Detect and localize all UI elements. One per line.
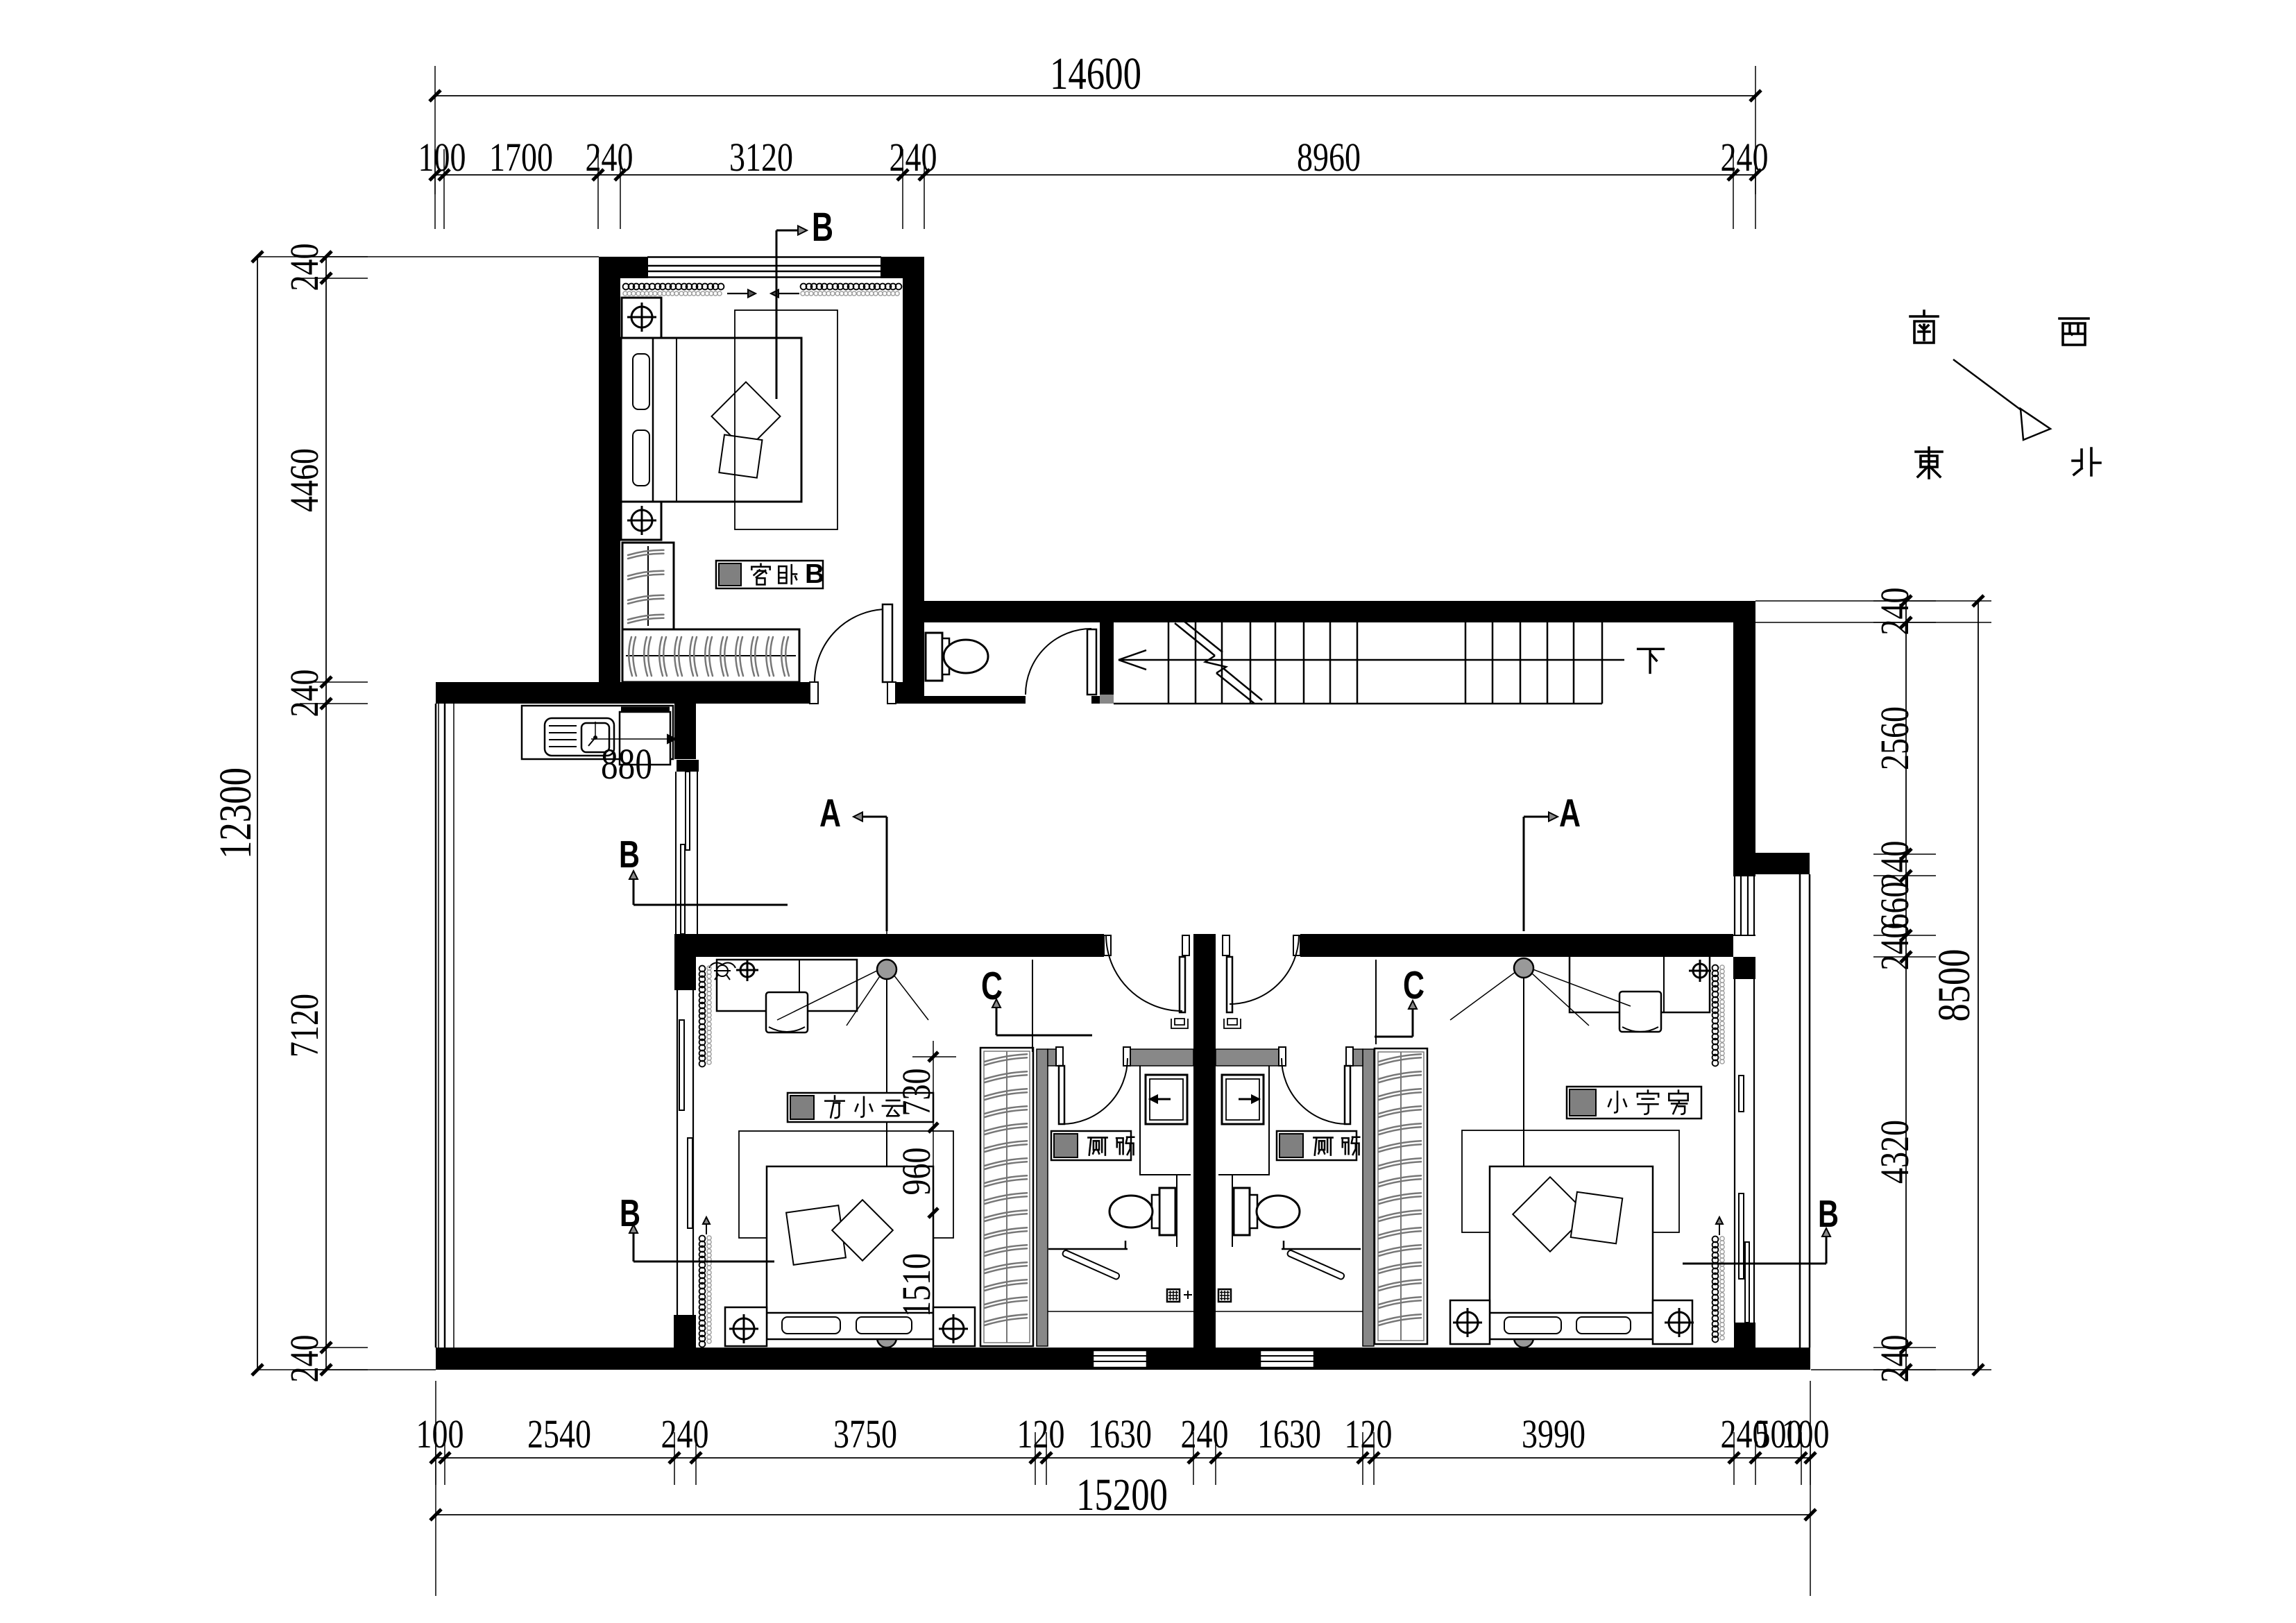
svg-text:B: B [620,1191,640,1234]
svg-text:660: 660 [1872,882,1917,930]
svg-text:7120: 7120 [282,994,327,1057]
svg-text:12300: 12300 [210,767,261,859]
svg-text:880: 880 [601,741,652,788]
svg-text:100: 100 [418,135,466,180]
svg-text:4320: 4320 [1872,1120,1917,1184]
svg-text:14600: 14600 [1050,49,1141,99]
svg-text:B: B [812,205,833,250]
svg-text:1630: 1630 [1257,1411,1321,1456]
svg-text:B: B [619,833,640,876]
svg-text:240: 240 [586,135,633,180]
svg-text:8500: 8500 [1929,949,1980,1022]
svg-text:3750: 3750 [833,1411,897,1456]
svg-text:B: B [1818,1192,1839,1235]
svg-text:1630: 1630 [1088,1411,1152,1456]
svg-text:730: 730 [894,1069,939,1116]
svg-text:240: 240 [282,670,327,717]
svg-text:3120: 3120 [729,135,793,180]
svg-text:A: A [1559,791,1581,835]
svg-text:C: C [1403,963,1425,1008]
svg-text:240: 240 [282,244,327,291]
svg-text:240: 240 [282,1335,327,1383]
svg-text:B: B [805,559,824,589]
svg-text:240: 240 [1872,588,1917,636]
svg-text:240: 240 [1872,1335,1917,1383]
svg-text:3990: 3990 [1522,1411,1585,1456]
svg-text:8960: 8960 [1297,135,1361,180]
svg-text:2540: 2540 [527,1411,591,1456]
svg-text:4460: 4460 [282,448,327,512]
svg-text:240: 240 [1721,135,1769,180]
svg-text:1510: 1510 [894,1253,939,1317]
svg-text:2560: 2560 [1872,706,1917,770]
svg-text:240: 240 [1181,1411,1229,1456]
svg-text:240: 240 [1872,841,1917,889]
svg-text:A: A [819,791,841,835]
svg-text:240: 240 [661,1411,709,1456]
svg-text:15200: 15200 [1076,1470,1168,1520]
svg-text:1700: 1700 [489,135,553,180]
svg-text:240: 240 [1872,923,1917,971]
svg-text:C: C [981,964,1003,1008]
svg-text:120: 120 [1345,1411,1393,1456]
svg-text:240: 240 [890,135,937,180]
svg-text:100: 100 [1782,1411,1830,1456]
svg-text:100: 100 [416,1411,464,1456]
svg-text:120: 120 [1017,1411,1065,1456]
svg-text:960: 960 [894,1148,939,1196]
